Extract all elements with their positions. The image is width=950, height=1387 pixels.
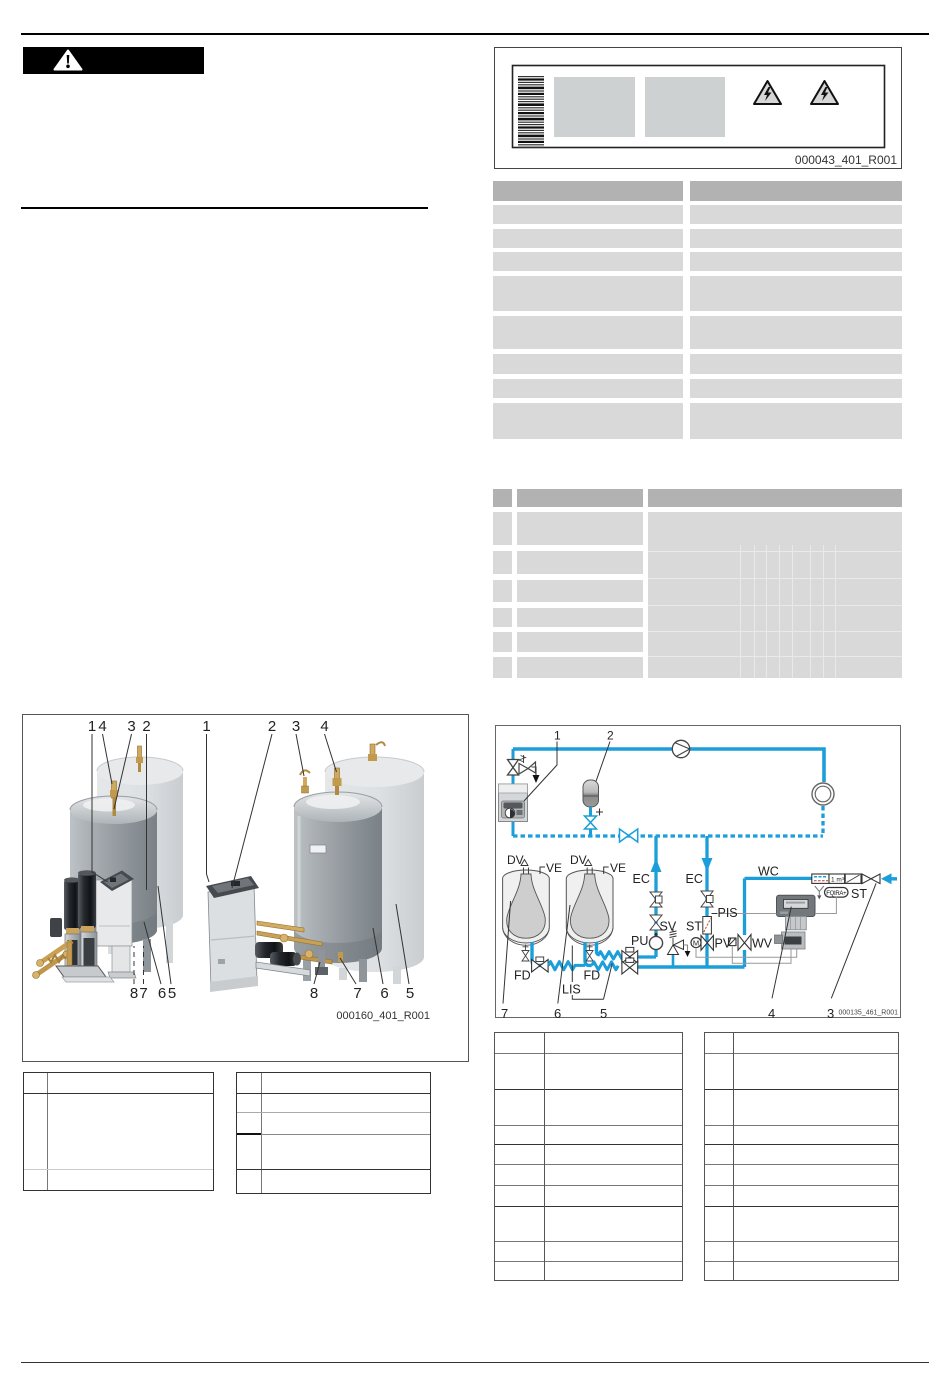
svg-text:5: 5 bbox=[600, 1006, 607, 1018]
svg-text:1: 1 bbox=[554, 729, 561, 743]
svg-text:M: M bbox=[693, 939, 699, 948]
svg-text:8: 8 bbox=[130, 985, 138, 1002]
svg-text:4: 4 bbox=[98, 718, 106, 735]
svg-text:7: 7 bbox=[353, 985, 361, 1002]
svg-text:PU: PU bbox=[631, 934, 648, 948]
svg-text:EC: EC bbox=[633, 872, 650, 886]
svg-text:WV: WV bbox=[752, 937, 773, 951]
svg-text:000160_401_R001: 000160_401_R001 bbox=[336, 1010, 430, 1022]
svg-text:FQIRA+: FQIRA+ bbox=[826, 891, 847, 897]
svg-text:1: 1 bbox=[88, 718, 96, 735]
svg-text:2: 2 bbox=[607, 729, 614, 743]
svg-text:5: 5 bbox=[406, 985, 414, 1002]
svg-text:2: 2 bbox=[142, 718, 150, 735]
svg-text:6: 6 bbox=[554, 1006, 561, 1018]
svg-text:FD: FD bbox=[584, 969, 601, 983]
svg-text:FD: FD bbox=[514, 969, 531, 983]
svg-text:DV: DV bbox=[570, 853, 587, 867]
svg-text:1: 1 bbox=[202, 718, 210, 735]
svg-text:VE: VE bbox=[546, 861, 562, 875]
svg-text:5: 5 bbox=[168, 985, 176, 1002]
svg-text:4: 4 bbox=[768, 1006, 775, 1018]
svg-text:WC: WC bbox=[758, 865, 779, 879]
svg-text:2: 2 bbox=[268, 718, 276, 735]
svg-text:SV: SV bbox=[660, 920, 677, 934]
svg-text:000135_461_R001: 000135_461_R001 bbox=[838, 1010, 898, 1017]
svg-text:6: 6 bbox=[380, 985, 388, 1002]
svg-text:PIS: PIS bbox=[718, 906, 738, 920]
svg-text:LIS: LIS bbox=[562, 983, 581, 997]
svg-text:7: 7 bbox=[139, 985, 147, 1002]
svg-text:7: 7 bbox=[501, 1006, 508, 1018]
svg-text:ST: ST bbox=[686, 920, 702, 934]
svg-text:3: 3 bbox=[292, 718, 300, 735]
svg-text:8: 8 bbox=[310, 985, 318, 1002]
svg-text:6: 6 bbox=[158, 985, 166, 1002]
svg-text:3: 3 bbox=[827, 1006, 834, 1018]
svg-text:PV: PV bbox=[715, 937, 732, 951]
svg-text:3: 3 bbox=[127, 718, 135, 735]
svg-text:000043_401_R001: 000043_401_R001 bbox=[795, 153, 897, 167]
svg-text:EC: EC bbox=[686, 872, 703, 886]
svg-text:1 m³: 1 m³ bbox=[831, 877, 845, 884]
svg-text:VE: VE bbox=[610, 861, 626, 875]
svg-text:4: 4 bbox=[320, 718, 328, 735]
svg-text:ST: ST bbox=[851, 887, 867, 901]
